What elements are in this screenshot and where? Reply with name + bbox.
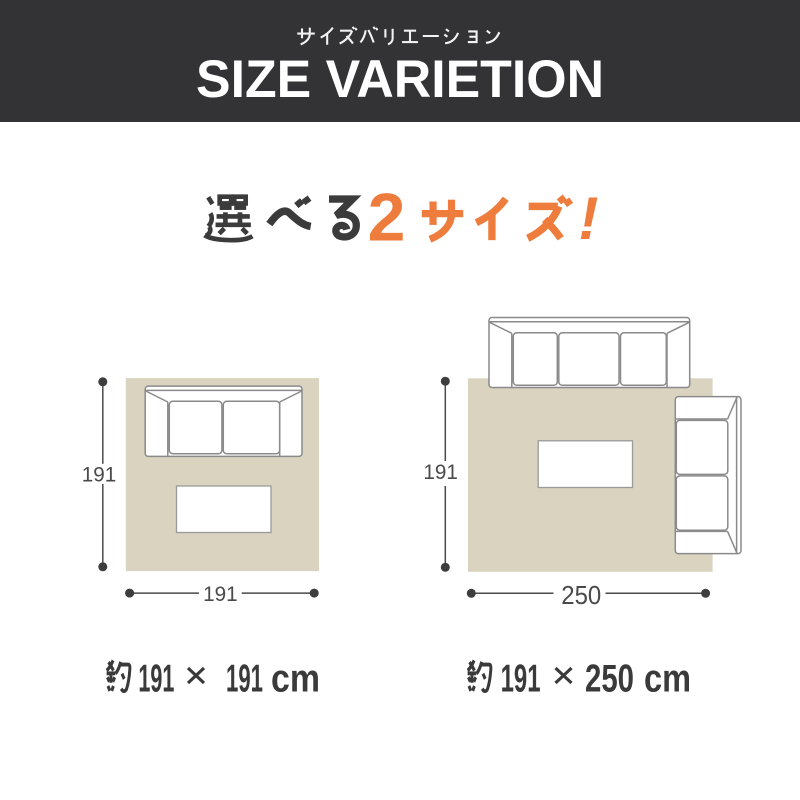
svg-text:250: 250	[585, 658, 634, 701]
svg-text:cm: cm	[644, 658, 691, 701]
svg-text:191: 191	[203, 582, 238, 606]
svg-text:191: 191	[423, 460, 458, 484]
svg-text:191: 191	[138, 658, 174, 701]
svg-text:191: 191	[82, 463, 117, 487]
svg-text:SIZE VARIETION: SIZE VARIETION	[196, 50, 604, 109]
svg-text:!: !	[579, 185, 599, 252]
svg-text:250: 250	[561, 580, 601, 610]
svg-text:2: 2	[368, 180, 406, 256]
svg-text:cm: cm	[271, 658, 320, 701]
svg-text:191: 191	[501, 658, 541, 701]
svg-text:191: 191	[226, 658, 263, 701]
